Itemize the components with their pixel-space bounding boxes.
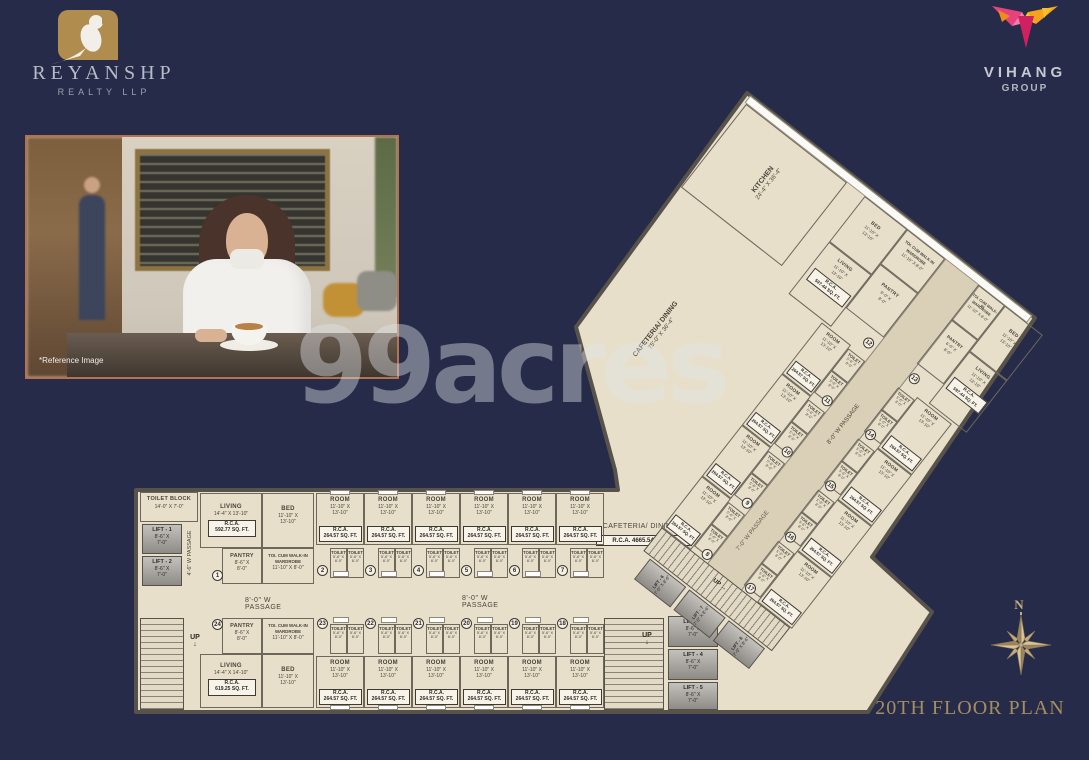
toilet-room: TOILET5'-6" X8'-0" bbox=[443, 548, 460, 578]
toilet-dims: 8'-0" bbox=[571, 559, 586, 563]
unit-number: 2 bbox=[317, 565, 328, 576]
room-label: ROOM bbox=[461, 497, 507, 504]
window-mark bbox=[570, 705, 590, 710]
room: ROOM11'-10" X13'-10"R.C.A.264.57 SQ. FT. bbox=[556, 493, 604, 545]
room-label: ROOM bbox=[509, 660, 555, 667]
toilet-dims: 8'-0" bbox=[523, 559, 538, 563]
unit-number: 18 bbox=[557, 618, 568, 629]
room-dims: 13'-10" bbox=[365, 511, 411, 517]
passage-46-label: 4'-6" W PASSAGE bbox=[184, 518, 196, 590]
toilet-dims: 8'-0" bbox=[571, 635, 586, 639]
floor-plan-page: REYANSHP REALTY LLP VIHANG GROUP *Refere… bbox=[0, 0, 1089, 760]
toilet-room: TOILET5'-6" X8'-0" bbox=[347, 548, 364, 578]
down-arrow-icon: ↓ bbox=[645, 639, 649, 646]
rca-line: 264.57 SQ. FT. bbox=[368, 533, 409, 539]
vihang-logo bbox=[988, 6, 1062, 62]
window-mark bbox=[378, 705, 398, 710]
lift-label: LIFT - 87'-0" X 8'-6" bbox=[728, 632, 750, 657]
toilet-room: TOILET5'-6" X8'-0" bbox=[347, 624, 364, 654]
toilet-dims: 8'-0" bbox=[331, 559, 346, 563]
unit1-bed: BED 11'-10" X 13'-10" bbox=[262, 493, 314, 548]
compass-icon bbox=[988, 612, 1054, 678]
toilet-dims: 8'-0" bbox=[331, 635, 346, 639]
lift-label: LIFT - 67'-0" X 8'-6" bbox=[649, 571, 671, 596]
lift-5: LIFT - 5 8'-6" X 7'-0" bbox=[668, 682, 718, 710]
room: ROOM11'-10" X13'-10"R.C.A.264.57 SQ. FT. bbox=[316, 656, 364, 708]
room-rca-box: R.C.A.264.57 SQ. FT. bbox=[463, 526, 506, 542]
unit24-number: 24 bbox=[212, 619, 223, 630]
unit-bottom-22: TOILET5'-6" X8'-0"TOILET5'-6" X8'-0"ROOM… bbox=[364, 618, 412, 708]
unit-bottom-21: TOILET5'-6" X8'-0"TOILET5'-6" X8'-0"ROOM… bbox=[412, 618, 460, 708]
lift-2: LIFT - 2 8'-6" X 7'-0" bbox=[142, 556, 182, 586]
toilet-dims: 8'-0" bbox=[492, 635, 507, 639]
unit24-living: LIVING 14'-4" X 14'-10" R.C.A. 619.25 SQ… bbox=[200, 654, 262, 708]
room-label: ROOM bbox=[461, 660, 507, 667]
door-mark bbox=[333, 571, 349, 577]
room-label: ROOM bbox=[413, 497, 459, 504]
unit-number: 22 bbox=[365, 618, 376, 629]
toilet-room: TOILET5'-6" X8'-0" bbox=[522, 624, 539, 654]
room: ROOM11'-10" X13'-10"R.C.A.264.57 SQ. FT. bbox=[316, 493, 364, 545]
toilet-dims: 8'-0" bbox=[379, 635, 394, 639]
toilet-room: TOILET5'-6" X8'-0" bbox=[443, 624, 460, 654]
toilet-dims: 8'-0" bbox=[588, 559, 603, 563]
room-label: ROOM bbox=[365, 660, 411, 667]
room-rca-box: R.C.A.264.57 SQ. FT. bbox=[559, 526, 602, 542]
unit-number: 4 bbox=[413, 565, 424, 576]
rca-line: 264.57 SQ. FT. bbox=[320, 696, 361, 702]
unit24-wardrobe: TOI. CUM WALK-IN WARDROBE 11'-10" X 8'-0… bbox=[262, 618, 314, 654]
room-rca-box: R.C.A.264.57 SQ. FT. bbox=[511, 689, 554, 705]
lift-1: LIFT - 1 8'-6" X 7'-0" bbox=[142, 524, 182, 554]
up-label-right: UP↓ bbox=[638, 632, 656, 646]
window-mark bbox=[330, 490, 350, 495]
room-dims: 13'-10" bbox=[509, 674, 555, 680]
door-mark bbox=[525, 571, 541, 577]
room: ROOM11'-10" X13'-10"R.C.A.264.57 SQ. FT. bbox=[460, 493, 508, 545]
unit13-number: 13 bbox=[907, 371, 922, 386]
unit12-number: 12 bbox=[861, 335, 876, 350]
door-mark bbox=[477, 617, 493, 623]
room: ROOM11'-10" X13'-10"R.C.A.264.57 SQ. FT. bbox=[460, 656, 508, 708]
door-mark bbox=[333, 617, 349, 623]
watermark: 99acres bbox=[295, 305, 815, 427]
room: ROOM11'-10" X13'-10"R.C.A.264.57 SQ. FT. bbox=[364, 656, 412, 708]
room-rca-box: R.C.A.264.57 SQ. FT. bbox=[367, 526, 410, 542]
unit24-bed: BED 11'-10" X 13'-10" bbox=[262, 654, 314, 708]
room-dims: 13'-10" bbox=[461, 674, 507, 680]
room-dims: 13'-10" bbox=[413, 674, 459, 680]
toilet-room: TOILET5'-6" X8'-0" bbox=[474, 624, 491, 654]
toilet-block-label: TOILET BLOCK bbox=[141, 496, 197, 502]
toilet-dims: 8'-0" bbox=[540, 635, 555, 639]
toilet-room: TOILET5'-6" X8'-0" bbox=[587, 548, 604, 578]
room-dims: 13'-10" bbox=[509, 511, 555, 517]
door-mark bbox=[477, 571, 493, 577]
rca-line: 264.57 SQ. FT. bbox=[464, 696, 505, 702]
reyanshp-logo bbox=[50, 8, 160, 66]
unit1-living: LIVING 14'-4" X 13'-10" R.C.A. 592.77 SQ… bbox=[200, 493, 262, 548]
room-label: ROOM bbox=[317, 660, 363, 667]
unit-number: 6 bbox=[509, 565, 520, 576]
room-rca-box: R.C.A.264.57 SQ. FT. bbox=[415, 689, 458, 705]
window-mark bbox=[522, 490, 542, 495]
lift-4: LIFT - 4 8'-6" X 7'-0" bbox=[668, 649, 718, 680]
toilet-dims: 8'-0" bbox=[348, 635, 363, 639]
unit-bottom-18: TOILET5'-6" X8'-0"TOILET5'-6" X8'-0"ROOM… bbox=[556, 618, 604, 708]
room-label: ROOM bbox=[509, 497, 555, 504]
unit1-pantry: PANTRY 8'-6" X 8'-0" bbox=[222, 548, 262, 584]
unit24-pantry: PANTRY 8'-6" X 8'-0" bbox=[222, 618, 262, 654]
room-rca-box: R.C.A.264.57 SQ. FT. bbox=[319, 689, 362, 705]
rca-line: 264.57 SQ. FT. bbox=[464, 533, 505, 539]
window-mark bbox=[474, 490, 494, 495]
toilet-room: TOILET5'-6" X8'-0" bbox=[570, 624, 587, 654]
toilet-dims: 8'-0" bbox=[492, 559, 507, 563]
unit1-number: 1 bbox=[212, 570, 223, 581]
unit-top-4: ROOM11'-10" X13'-10"R.C.A.264.57 SQ. FT.… bbox=[412, 493, 460, 583]
room-rca-box: R.C.A.264.57 SQ. FT. bbox=[367, 689, 410, 705]
toilet-dims: 8'-0" bbox=[540, 559, 555, 563]
door-mark bbox=[381, 617, 397, 623]
room: ROOM11'-10" X13'-10"R.C.A.264.57 SQ. FT. bbox=[508, 656, 556, 708]
unit1-wardrobe: TOI. CUM WALK-IN WARDROBE 11'-10" X 8'-0… bbox=[262, 548, 314, 584]
room: ROOM11'-10" X13'-10"R.C.A.264.57 SQ. FT. bbox=[412, 493, 460, 545]
door-mark bbox=[573, 617, 589, 623]
room-label: ROOM bbox=[413, 660, 459, 667]
room-rca-box: R.C.A.264.57 SQ. FT. bbox=[319, 526, 362, 542]
unit-bottom-19: TOILET5'-6" X8'-0"TOILET5'-6" X8'-0"ROOM… bbox=[508, 618, 556, 708]
room-label: ROOM bbox=[557, 497, 603, 504]
toilet-room: TOILET5'-6" X8'-0" bbox=[378, 624, 395, 654]
toilet-dims: 8'-0" bbox=[475, 635, 490, 639]
toilet-dims: 8'-0" bbox=[427, 635, 442, 639]
rca-line: 264.57 SQ. FT. bbox=[560, 533, 601, 539]
unit-top-3: ROOM11'-10" X13'-10"R.C.A.264.57 SQ. FT.… bbox=[364, 493, 412, 583]
room-dims: 13'-10" bbox=[317, 674, 363, 680]
room: ROOM11'-10" X13'-10"R.C.A.264.57 SQ. FT. bbox=[556, 656, 604, 708]
room-rca-box: R.C.A.264.57 SQ. FT. bbox=[463, 689, 506, 705]
unit-number: 19 bbox=[509, 618, 520, 629]
unit-number: 23 bbox=[317, 618, 328, 629]
toilet-dims: 8'-0" bbox=[523, 635, 538, 639]
room-rca-box: R.C.A.264.57 SQ. FT. bbox=[559, 689, 602, 705]
room-label: ROOM bbox=[365, 497, 411, 504]
room-label: ROOM bbox=[557, 660, 603, 667]
room-dims: 13'-10" bbox=[557, 674, 603, 680]
window-mark bbox=[522, 705, 542, 710]
unit-top-7: ROOM11'-10" X13'-10"R.C.A.264.57 SQ. FT.… bbox=[556, 493, 604, 583]
room-dims: 13'-10" bbox=[461, 511, 507, 517]
window-mark bbox=[474, 705, 494, 710]
toilet-room: TOILET5'-6" X8'-0" bbox=[491, 548, 508, 578]
toilet-dims: 8'-0" bbox=[427, 559, 442, 563]
toilet-block-dims: 14'-0" X 7'-0" bbox=[141, 505, 197, 511]
rca-line: 264.57 SQ. FT. bbox=[512, 533, 553, 539]
unit-number: 21 bbox=[413, 618, 424, 629]
toilet-room: TOILET5'-6" X8'-0" bbox=[330, 624, 347, 654]
rca-line: 264.57 SQ. FT. bbox=[416, 533, 457, 539]
window-mark bbox=[378, 490, 398, 495]
toilet-dims: 8'-0" bbox=[444, 559, 459, 563]
toilet-dims: 8'-0" bbox=[379, 559, 394, 563]
door-mark bbox=[429, 571, 445, 577]
room-rca-box: R.C.A.264.57 SQ. FT. bbox=[415, 526, 458, 542]
room: ROOM11'-10" X13'-10"R.C.A.264.57 SQ. FT. bbox=[508, 493, 556, 545]
toilet-dims: 8'-0" bbox=[475, 559, 490, 563]
toilet-room: TOILET5'-6" X8'-0" bbox=[539, 548, 556, 578]
room: ROOM11'-10" X13'-10"R.C.A.264.57 SQ. FT. bbox=[412, 656, 460, 708]
unit-top-6: ROOM11'-10" X13'-10"R.C.A.264.57 SQ. FT.… bbox=[508, 493, 556, 583]
door-mark bbox=[525, 617, 541, 623]
unit-bottom-23: TOILET5'-6" X8'-0"TOILET5'-6" X8'-0"ROOM… bbox=[316, 618, 364, 708]
door-mark bbox=[381, 571, 397, 577]
toilet-dims: 8'-0" bbox=[588, 635, 603, 639]
passage-80-left-label: 8'-0" W PASSAGE bbox=[245, 597, 281, 611]
lift-label: LIFT - 77'-0" X 8'-6" bbox=[688, 602, 710, 627]
toilet-room: TOILET5'-6" X8'-0" bbox=[426, 624, 443, 654]
unit-number: 20 bbox=[461, 618, 472, 629]
door-mark bbox=[429, 617, 445, 623]
toilet-dims: 8'-0" bbox=[396, 559, 411, 563]
unit-top-5: ROOM11'-10" X13'-10"R.C.A.264.57 SQ. FT.… bbox=[460, 493, 508, 583]
up-label-left: UP↓ bbox=[186, 634, 204, 648]
toilet-room: TOILET5'-6" X8'-0" bbox=[395, 624, 412, 654]
room-dims: 13'-10" bbox=[317, 511, 363, 517]
rca-line: 264.57 SQ. FT. bbox=[416, 696, 457, 702]
toilet-room: TOILET5'-6" X8'-0" bbox=[587, 624, 604, 654]
window-mark bbox=[426, 490, 446, 495]
room-label: ROOM bbox=[317, 497, 363, 504]
rca-line: 264.57 SQ. FT. bbox=[368, 696, 409, 702]
photo-caption: *Reference Image bbox=[39, 356, 103, 365]
unit-top-2: ROOM11'-10" X13'-10"R.C.A.264.57 SQ. FT.… bbox=[316, 493, 364, 583]
passage-80-right-label: 8'-0" W PASSAGE bbox=[462, 595, 498, 609]
room-dims: 13'-10" bbox=[365, 674, 411, 680]
rca-line: 264.57 SQ. FT. bbox=[512, 696, 553, 702]
unit-number: 3 bbox=[365, 565, 376, 576]
room-dims: 13'-10" bbox=[413, 511, 459, 517]
toilet-dims: 8'-0" bbox=[396, 635, 411, 639]
stairs-left bbox=[140, 618, 184, 710]
window-mark bbox=[570, 490, 590, 495]
unit-number: 7 bbox=[557, 565, 568, 576]
room: ROOM11'-10" X13'-10"R.C.A.264.57 SQ. FT. bbox=[364, 493, 412, 545]
room-rca-box: R.C.A.264.57 SQ. FT. bbox=[511, 526, 554, 542]
room-dims: 13'-10" bbox=[557, 511, 603, 517]
rca-line: 264.57 SQ. FT. bbox=[560, 696, 601, 702]
toilet-room: TOILET5'-6" X8'-0" bbox=[539, 624, 556, 654]
toilet-room: TOILET5'-6" X8'-0" bbox=[491, 624, 508, 654]
down-arrow-icon: ↓ bbox=[193, 641, 197, 648]
window-mark bbox=[330, 705, 350, 710]
rca-line: 264.57 SQ. FT. bbox=[320, 533, 361, 539]
door-mark bbox=[573, 571, 589, 577]
toilet-dims: 8'-0" bbox=[444, 635, 459, 639]
unit-number: 5 bbox=[461, 565, 472, 576]
unit-bottom-20: TOILET5'-6" X8'-0"TOILET5'-6" X8'-0"ROOM… bbox=[460, 618, 508, 708]
window-mark bbox=[426, 705, 446, 710]
toilet-room: TOILET5'-6" X8'-0" bbox=[395, 548, 412, 578]
toilet-dims: 8'-0" bbox=[348, 559, 363, 563]
